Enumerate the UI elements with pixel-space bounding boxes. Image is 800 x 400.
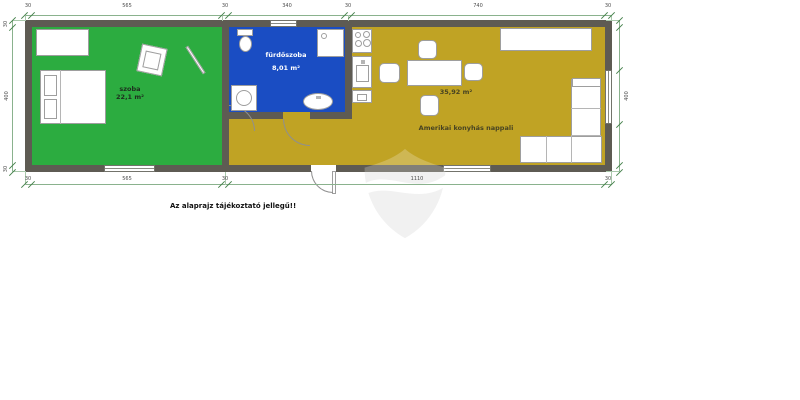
dim-left-depth: 400 [4, 91, 10, 101]
dimension-line-left [12, 20, 13, 172]
dim-left-wall-bottom: 30 [3, 166, 9, 172]
dim-top-wall-2: 30 [222, 3, 228, 9]
dim-bottom-living: 1110 [411, 176, 424, 182]
dim-right-depth: 400 [624, 91, 630, 101]
dimension-line-right [619, 20, 620, 172]
dim-left-wall-top: 30 [3, 21, 9, 27]
dim-top-bathroom: 340 [282, 3, 292, 9]
dimension-line-top [25, 15, 612, 16]
dim-top-living: 740 [473, 3, 483, 9]
dimension-annotations: 30 565 30 340 30 740 30 30 565 30 1110 3… [0, 0, 800, 400]
dim-top-wall-4: 30 [605, 3, 611, 9]
dim-top-bedroom: 565 [122, 3, 132, 9]
dim-top-wall-3: 30 [345, 3, 351, 9]
dim-bottom-wall-2: 30 [222, 176, 228, 182]
floor-plan: szoba 22,1 m² fürdőszoba 8,01 m² 35,92 m… [0, 0, 800, 400]
dim-bottom-wall-1: 30 [25, 176, 31, 182]
dim-top-wall-1: 30 [25, 3, 31, 9]
dimension-line-bottom [25, 184, 612, 185]
dim-bottom-wall-3: 30 [605, 176, 611, 182]
dim-bottom-bedroom: 565 [122, 176, 132, 182]
